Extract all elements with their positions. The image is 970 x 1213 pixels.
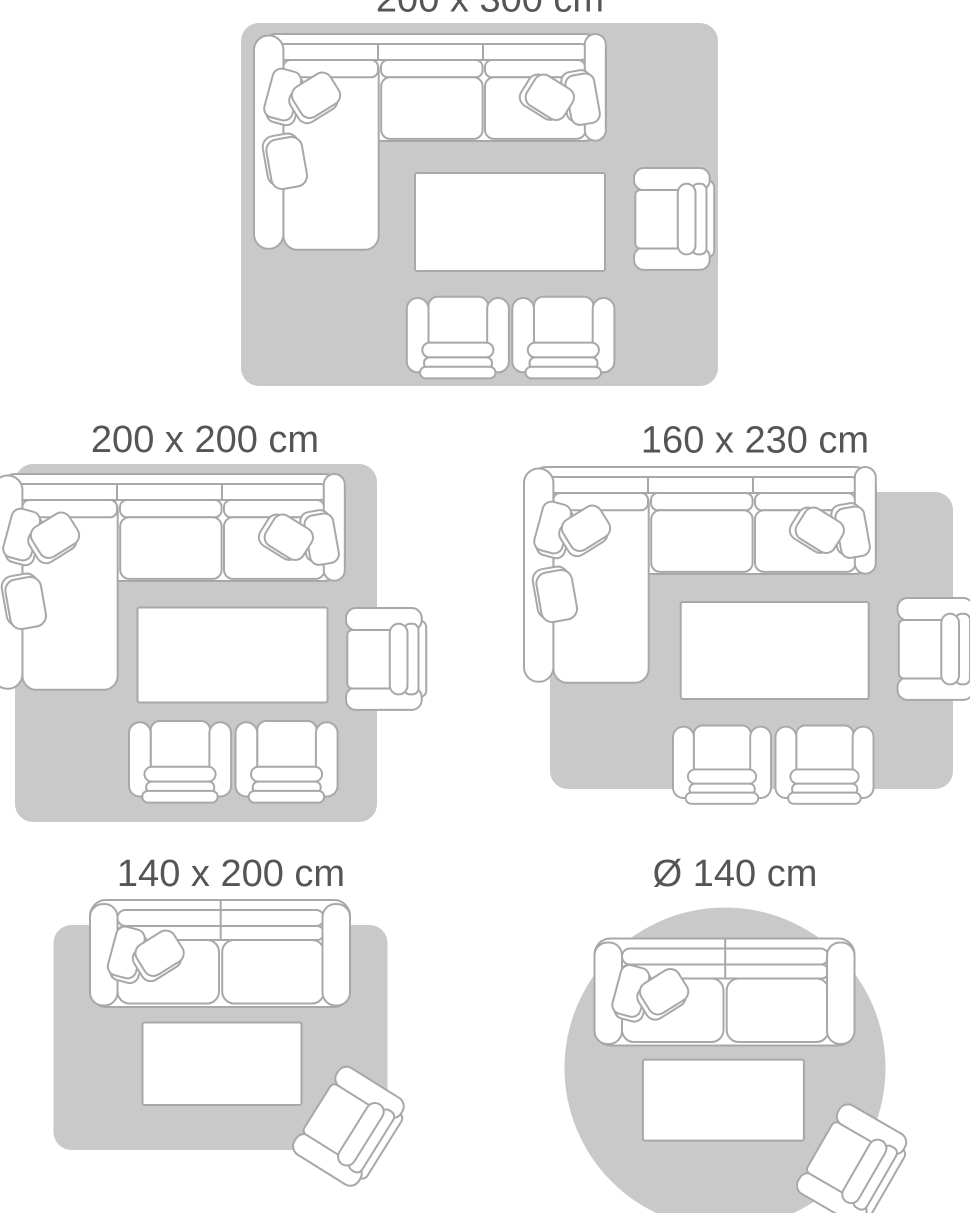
- svg-text:200 x 300 cm: 200 x 300 cm: [376, 0, 604, 21]
- svg-text:200 x 200 cm: 200 x 200 cm: [91, 419, 319, 461]
- svg-text:160 x 230 cm: 160 x 230 cm: [641, 420, 869, 462]
- svg-text:Ø 140 cm: Ø 140 cm: [653, 853, 818, 895]
- svg-text:140 x 200 cm: 140 x 200 cm: [117, 853, 345, 895]
